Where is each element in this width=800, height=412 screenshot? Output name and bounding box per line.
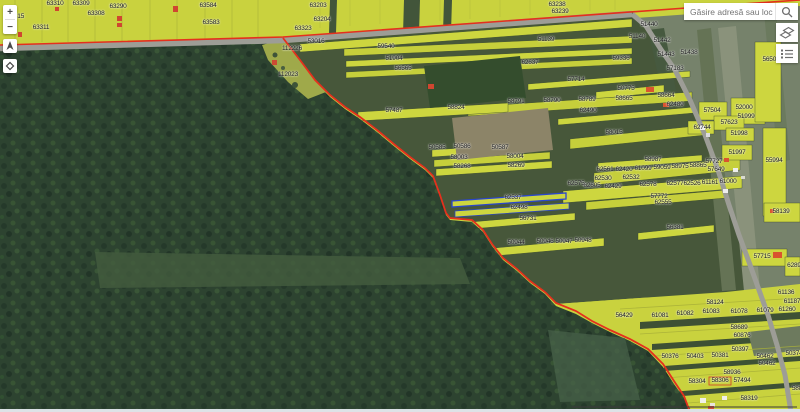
- forest-clearing: [95, 252, 470, 288]
- layer-list-icon: [779, 47, 795, 61]
- diamond-icon: [3, 59, 17, 73]
- search-icon: [781, 6, 793, 18]
- map-canvas[interactable]: [0, 0, 800, 412]
- basemap-icon: [779, 26, 795, 40]
- zoom-in-button[interactable]: +: [3, 5, 17, 19]
- compass-button[interactable]: [3, 39, 17, 53]
- search-submit[interactable]: [775, 3, 798, 20]
- zoom-out-button[interactable]: −: [3, 20, 17, 34]
- layer-list-button[interactable]: [776, 44, 798, 63]
- north-arrow-icon: [3, 39, 17, 53]
- locate-button[interactable]: [3, 59, 17, 73]
- zoom-widget: + −: [3, 5, 17, 34]
- basemap-gallery-button[interactable]: [776, 23, 798, 42]
- map-application: 6331063309632906330831563311635846358363…: [0, 0, 800, 412]
- search-input[interactable]: [684, 3, 775, 20]
- search-box: [684, 3, 798, 20]
